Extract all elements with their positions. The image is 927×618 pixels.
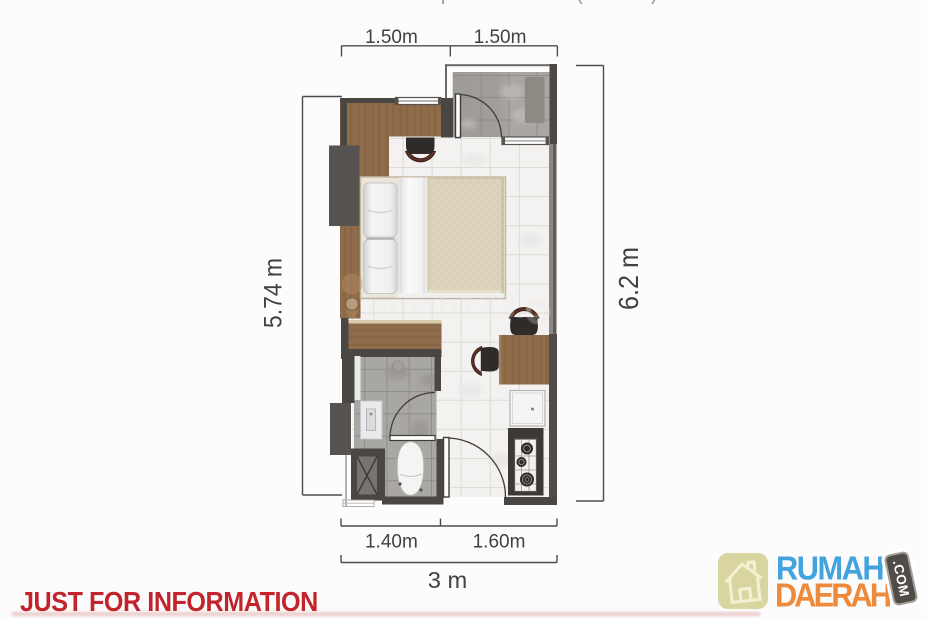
svg-text:1.60m: 1.60m (473, 532, 526, 553)
svg-text:1.50m: 1.50m (365, 27, 418, 48)
svg-text:3 m: 3 m (428, 567, 468, 593)
svg-text:6.2 m: 6.2 m (613, 247, 644, 310)
svg-text:1.50m: 1.50m (474, 27, 527, 48)
svg-text:1.40m: 1.40m (365, 532, 418, 553)
svg-text:5.74 m: 5.74 m (260, 258, 288, 328)
svg-text:umah123.c: umah123.c (368, 288, 544, 326)
